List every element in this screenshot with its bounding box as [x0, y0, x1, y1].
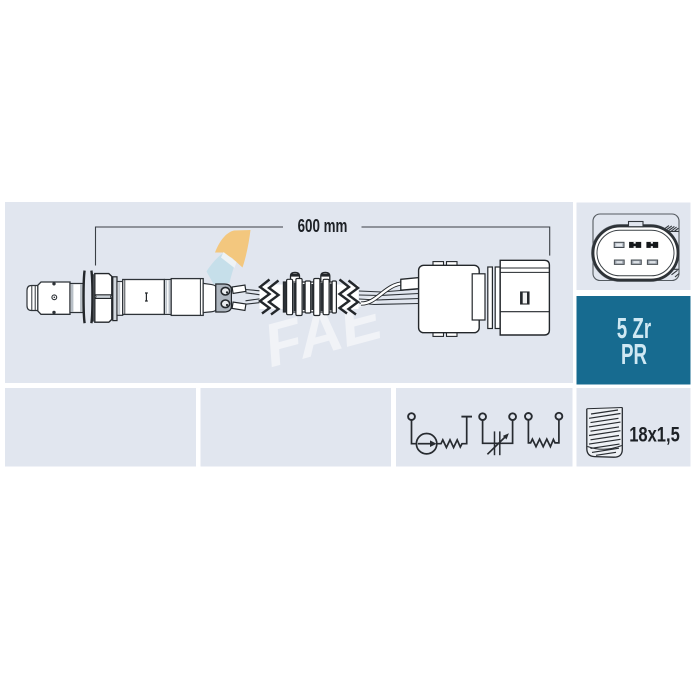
- svg-text:600 mm: 600 mm: [298, 216, 348, 237]
- svg-text:18x1,5: 18x1,5: [629, 424, 680, 448]
- svg-text:PR: PR: [621, 339, 647, 371]
